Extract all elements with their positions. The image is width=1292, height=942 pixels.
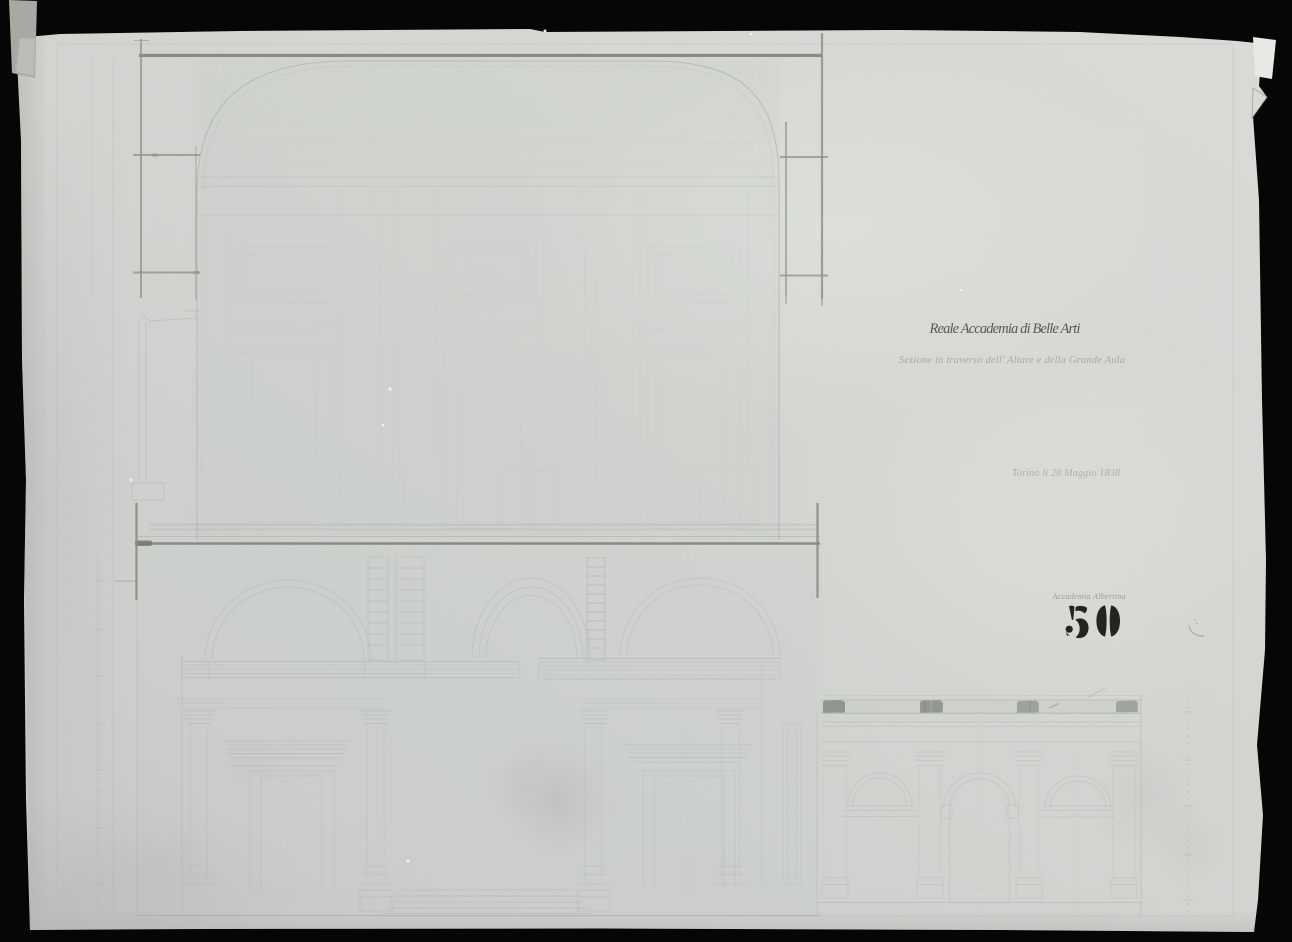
- svg-text:Sezione in traverso dell’ Alta: Sezione in traverso dell’ Altare e della…: [899, 355, 1125, 366]
- svg-text:Reale Accademia di Belle Arti: Reale Accademia di Belle Arti: [929, 321, 1081, 337]
- svg-text:Torino li 28 Maggio 1838: Torino li 28 Maggio 1838: [1012, 468, 1120, 479]
- svg-text:Accademia Albertina: Accademia Albertina: [1052, 592, 1126, 601]
